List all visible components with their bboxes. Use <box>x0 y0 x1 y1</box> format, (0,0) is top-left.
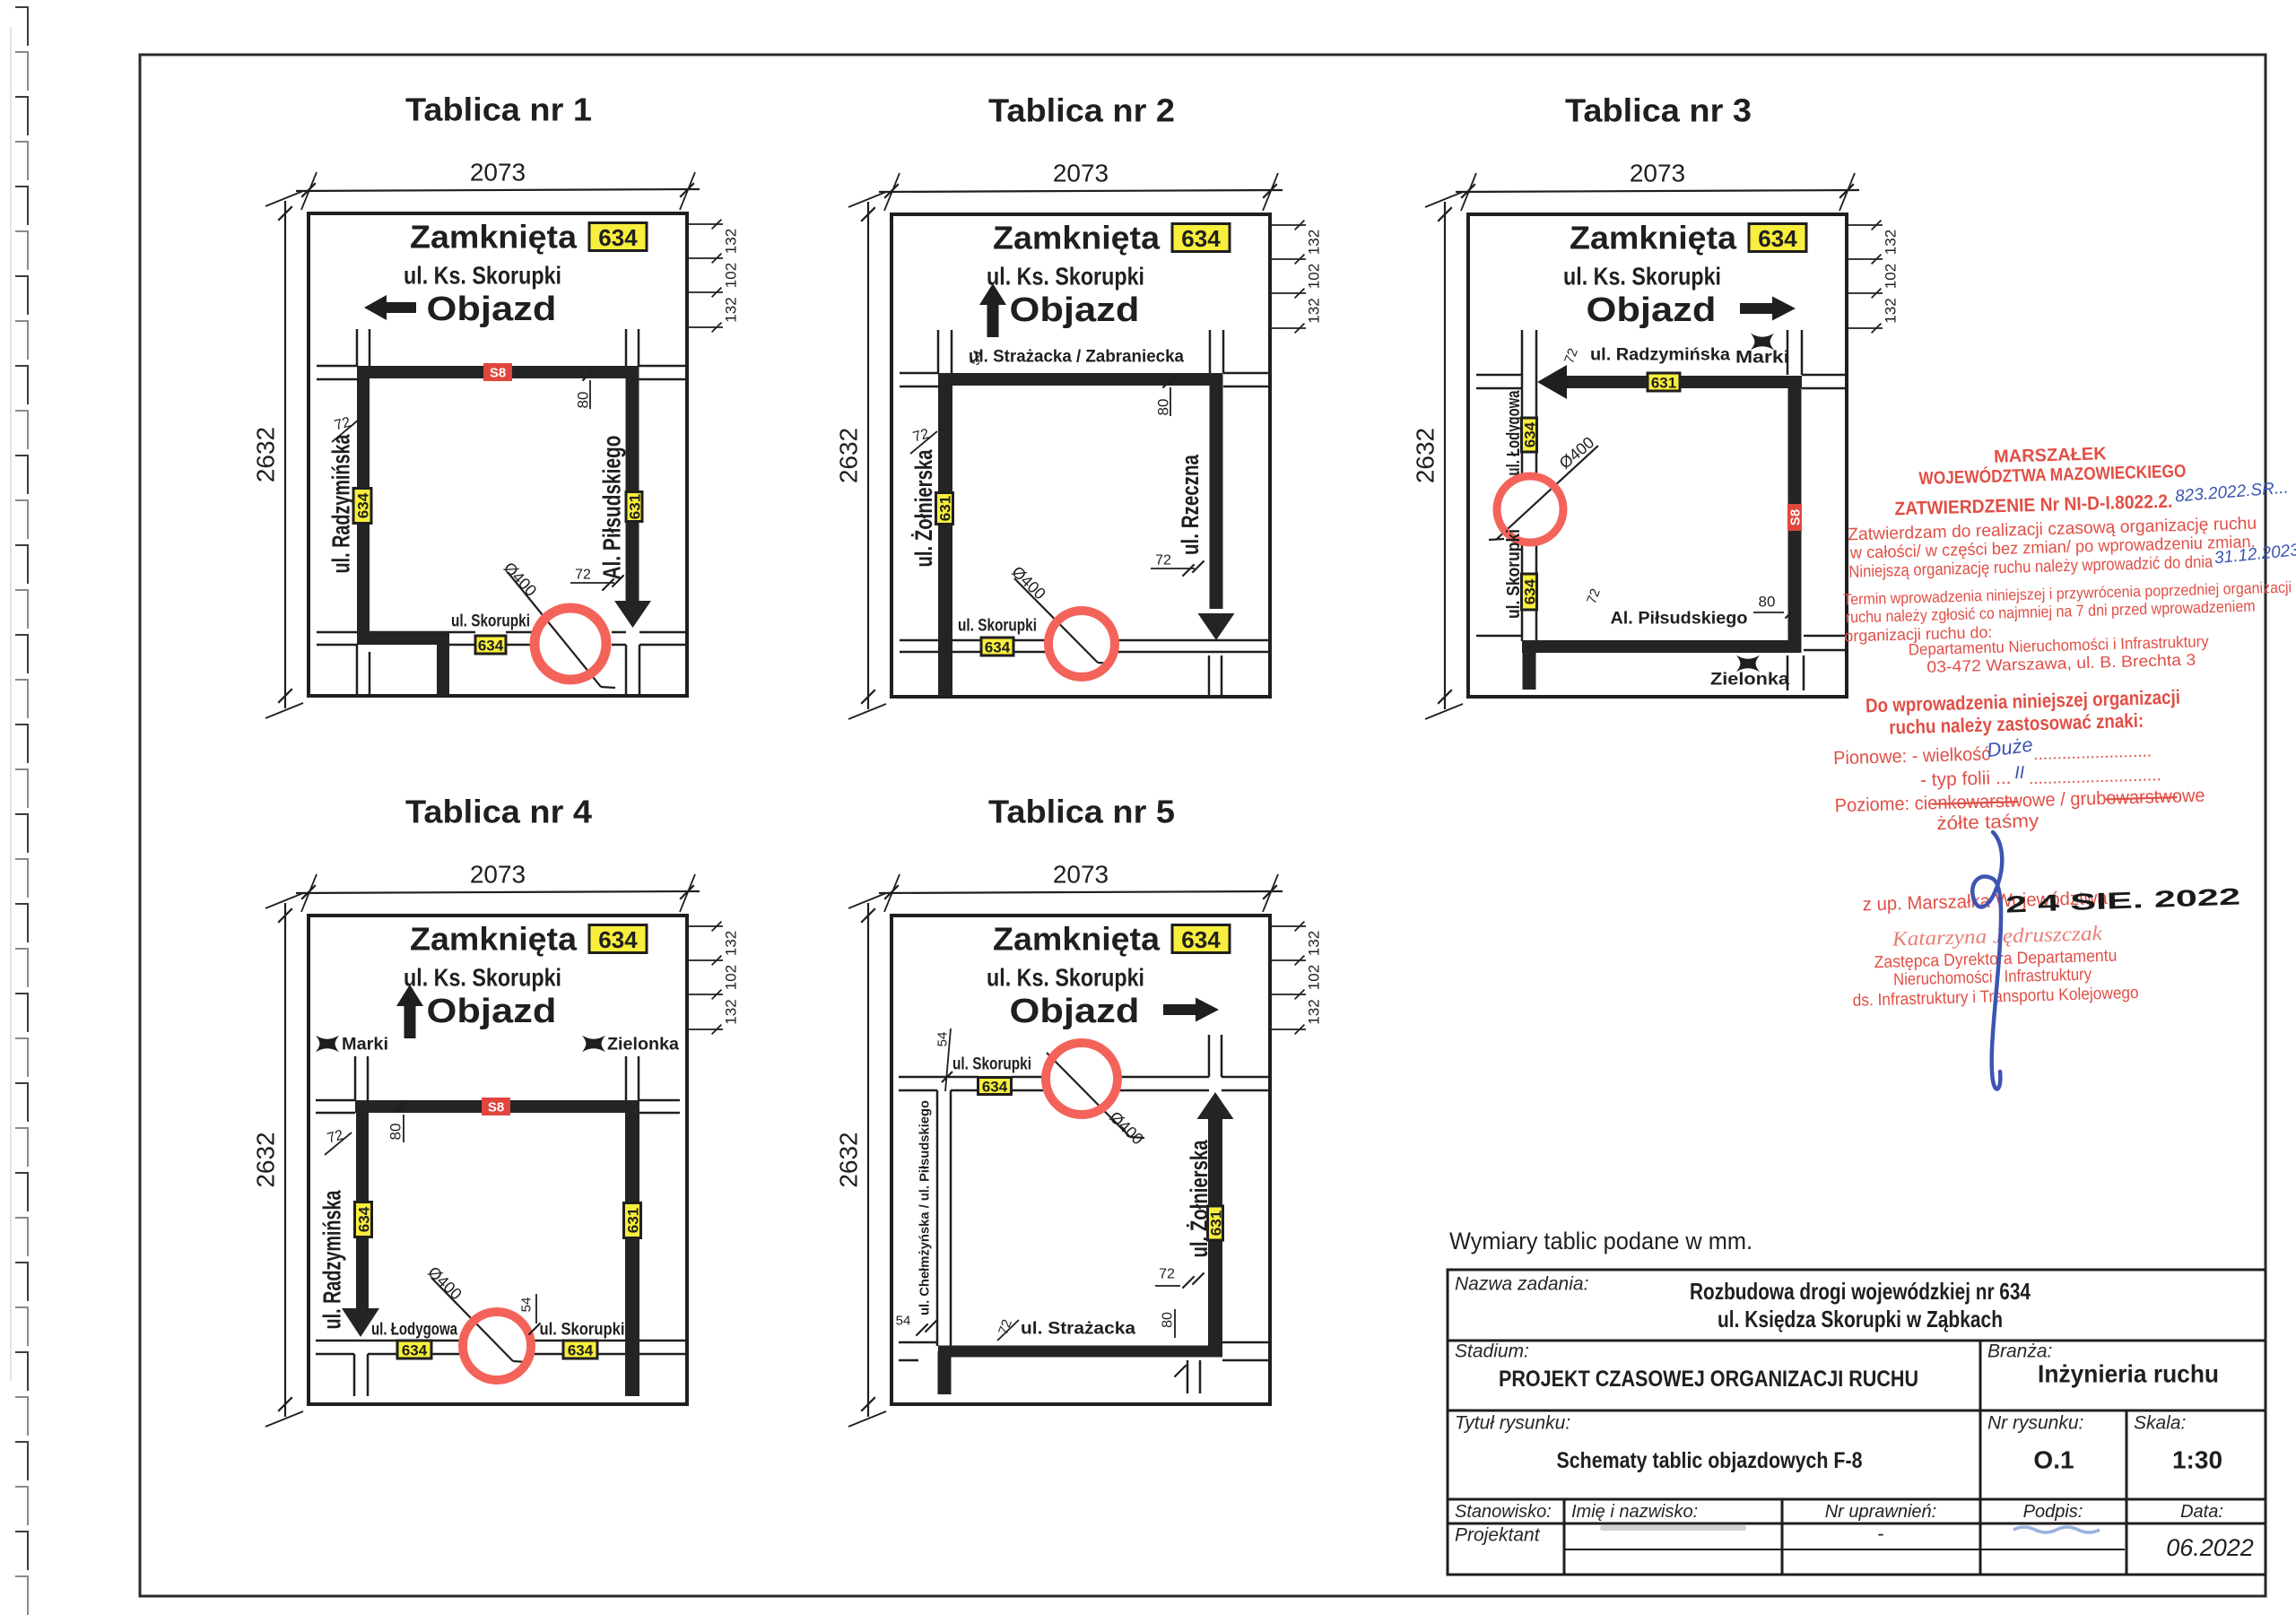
svg-text:1:30: 1:30 <box>2172 1446 2222 1474</box>
svg-text:ul. Ks. Skorupki: ul. Ks. Skorupki <box>1563 263 1721 291</box>
svg-text:Skala:: Skala: <box>2134 1413 2186 1434</box>
svg-text:Zielonka: Zielonka <box>607 1036 679 1055</box>
svg-text:ul. Skorupki: ul. Skorupki <box>1504 529 1524 619</box>
svg-text:132: 132 <box>723 229 740 254</box>
svg-text:Nr uprawnień:: Nr uprawnień: <box>1825 1502 1937 1522</box>
svg-text:634: 634 <box>355 492 372 518</box>
svg-text:80: 80 <box>1155 399 1172 416</box>
svg-text:06.2022: 06.2022 <box>2166 1534 2254 1561</box>
svg-text:634: 634 <box>985 639 1011 656</box>
svg-text:132: 132 <box>723 297 740 322</box>
svg-text:2073: 2073 <box>1630 160 1685 187</box>
svg-text:631: 631 <box>1651 375 1676 392</box>
svg-text:132: 132 <box>1306 931 1323 956</box>
svg-text:ul. Księdza Skorupki w Ząbkach: ul. Księdza Skorupki w Ząbkach <box>1718 1306 2003 1332</box>
svg-text:634: 634 <box>1522 578 1539 604</box>
svg-text:102: 102 <box>1306 264 1323 289</box>
svg-text:Podpis:: Podpis: <box>2023 1502 2083 1522</box>
svg-text:ul. Strażacka: ul. Strażacka <box>1021 1320 1135 1339</box>
svg-text:634: 634 <box>598 224 638 251</box>
svg-text:ul. Skorupki: ul. Skorupki <box>958 617 1037 636</box>
svg-text:-: - <box>1877 1523 1883 1545</box>
svg-text:631: 631 <box>937 496 954 521</box>
svg-text:2073: 2073 <box>470 861 526 889</box>
svg-text:ul. Łodygowa: ul. Łodygowa <box>1504 390 1524 476</box>
svg-text:Zamknięta: Zamknięta <box>993 921 1161 958</box>
svg-text:132: 132 <box>723 931 740 956</box>
svg-text:Objazd: Objazd <box>1587 291 1717 329</box>
svg-text:2632: 2632 <box>835 428 863 483</box>
svg-text:Stadium:: Stadium: <box>1455 1341 1529 1362</box>
svg-text:.........................: ......................... <box>2033 742 2152 764</box>
svg-text:Pionowe: - wielkość: Pionowe: - wielkość <box>1833 743 1991 768</box>
svg-text:2632: 2632 <box>252 1132 280 1187</box>
svg-text:ul. Łodygowa: ul. Łodygowa <box>371 1321 457 1340</box>
svg-text:Al. Piłsudskiego: Al. Piłsudskiego <box>1611 610 1748 629</box>
svg-text:Imię i nazwisko:: Imię i nazwisko: <box>1571 1502 1698 1522</box>
svg-text:80: 80 <box>1759 594 1776 611</box>
svg-text:631: 631 <box>627 494 644 519</box>
svg-text:Objazd: Objazd <box>1010 993 1140 1030</box>
svg-text:2632: 2632 <box>1412 428 1439 483</box>
svg-text:ul. Żołnierska: ul. Żołnierska <box>910 449 937 568</box>
svg-text:634: 634 <box>1181 225 1221 252</box>
svg-text:ul. Radzymińska: ul. Radzymińska <box>1590 346 1730 365</box>
svg-text:2073: 2073 <box>1053 861 1109 889</box>
svg-text:żółte taśmy: żółte taśmy <box>1936 811 2039 834</box>
svg-text:Zielonka: Zielonka <box>1710 671 1789 690</box>
svg-text:72: 72 <box>1155 553 1171 568</box>
svg-text:S8: S8 <box>490 366 506 381</box>
svg-text:80: 80 <box>387 1124 404 1141</box>
svg-text:S8: S8 <box>1788 509 1804 525</box>
svg-text:PROJEKT CZASOWEJ ORGANIZACJI R: PROJEKT CZASOWEJ ORGANIZACJI RUCHU <box>1499 1367 1918 1392</box>
svg-text:80: 80 <box>1161 1312 1176 1328</box>
svg-text:102: 102 <box>723 263 740 288</box>
svg-text:ul. Strażacka / Zabraniecka: ul. Strażacka / Zabraniecka <box>969 348 1184 367</box>
svg-text:O.1: O.1 <box>2033 1446 2074 1474</box>
svg-text:132: 132 <box>1306 999 1323 1024</box>
svg-text:Al. Piłsudskiego: Al. Piłsudskiego <box>598 436 626 580</box>
svg-text:Zamknięta: Zamknięta <box>410 921 578 958</box>
svg-text:Tablica nr 1: Tablica nr 1 <box>405 91 592 128</box>
svg-text:Nazwa zadania:: Nazwa zadania: <box>1455 1274 1588 1295</box>
svg-text:Stanowisko:: Stanowisko: <box>1455 1502 1552 1522</box>
svg-text:ul. Ks. Skorupki: ul. Ks. Skorupki <box>987 964 1144 992</box>
svg-text:634: 634 <box>1758 225 1797 252</box>
svg-text:54: 54 <box>896 1314 911 1329</box>
svg-text:102: 102 <box>1883 264 1900 289</box>
svg-text:Zamknięta: Zamknięta <box>1570 220 1737 256</box>
svg-text:132: 132 <box>1306 298 1323 323</box>
svg-text:ul. Ks. Skorupki: ul. Ks. Skorupki <box>404 262 561 290</box>
svg-text:Tablica nr 2: Tablica nr 2 <box>988 92 1175 129</box>
svg-text:102: 102 <box>723 965 740 990</box>
svg-text:132: 132 <box>1883 230 1900 255</box>
svg-text:634: 634 <box>1181 926 1221 953</box>
svg-text:Nr rysunku:: Nr rysunku: <box>1987 1413 2083 1434</box>
svg-text:ul. Ks. Skorupki: ul. Ks. Skorupki <box>987 263 1144 291</box>
svg-text:ul. Skorupki: ul. Skorupki <box>952 1055 1031 1074</box>
svg-text:ul. Radzymińska: ul. Radzymińska <box>318 1190 346 1329</box>
svg-text:Objazd: Objazd <box>1010 291 1140 329</box>
svg-text:72: 72 <box>575 568 591 583</box>
svg-text:Wymiary tablic podane w mm.: Wymiary tablic podane w mm. <box>1449 1228 1752 1254</box>
svg-text:634: 634 <box>568 1342 594 1359</box>
svg-text:Schematy tablic objazdowych F-: Schematy tablic objazdowych F-8 <box>1557 1448 1863 1473</box>
svg-text:Marki: Marki <box>1735 349 1789 368</box>
svg-text:634: 634 <box>1522 421 1539 447</box>
svg-text:80: 80 <box>575 392 592 409</box>
svg-text:ul. Skorupki: ul. Skorupki <box>540 1321 625 1340</box>
svg-text:132: 132 <box>723 999 740 1024</box>
svg-text:634: 634 <box>478 638 504 655</box>
svg-text:634: 634 <box>982 1079 1008 1096</box>
svg-text:Tablica nr 3: Tablica nr 3 <box>1565 92 1752 129</box>
svg-text:Projektant: Projektant <box>1455 1525 1541 1546</box>
svg-text:S8: S8 <box>488 1100 504 1115</box>
svg-text:Tablica nr 4: Tablica nr 4 <box>405 794 592 830</box>
svg-text:ul. Radzymińska: ul. Radzymińska <box>327 434 355 573</box>
svg-text:54: 54 <box>519 1298 535 1313</box>
svg-text:634: 634 <box>356 1206 373 1232</box>
svg-text:II: II <box>2014 763 2025 783</box>
svg-text:102: 102 <box>1306 965 1323 990</box>
svg-text:634: 634 <box>402 1342 428 1359</box>
svg-text:Marki: Marki <box>342 1036 388 1055</box>
svg-text:ul. Skorupki: ul. Skorupki <box>451 612 530 631</box>
svg-text:Objazd: Objazd <box>427 291 557 328</box>
svg-text:634: 634 <box>598 926 638 953</box>
svg-text:Inżynieria ruchu: Inżynieria ruchu <box>2038 1360 2219 1388</box>
svg-text:Zamknięta: Zamknięta <box>410 219 578 256</box>
svg-text:ul. Żołnierska: ul. Żołnierska <box>1186 1140 1213 1258</box>
svg-text:Branża:: Branża: <box>1987 1341 2052 1362</box>
svg-text:Objazd: Objazd <box>427 993 557 1030</box>
svg-text:ul. Chełmżyńska / ul. Piłsudsk: ul. Chełmżyńska / ul. Piłsudskiego <box>918 1100 933 1315</box>
svg-text:............................: ............................ <box>2029 766 2161 788</box>
svg-text:ul. Rzeczna: ul. Rzeczna <box>1177 454 1204 555</box>
svg-text:- typ folii ...: - typ folii ... <box>1920 768 2012 791</box>
svg-text:Tablica nr 5: Tablica nr 5 <box>988 794 1175 830</box>
svg-text:132: 132 <box>1883 298 1900 323</box>
svg-text:Tytuł rysunku:: Tytuł rysunku: <box>1455 1413 1570 1434</box>
svg-text:2632: 2632 <box>252 427 280 482</box>
svg-text:2632: 2632 <box>835 1132 863 1187</box>
svg-text:2073: 2073 <box>470 159 526 187</box>
svg-text:Zamknięta: Zamknięta <box>993 220 1161 256</box>
svg-text:72: 72 <box>1159 1267 1175 1282</box>
svg-text:Rozbudowa drogi wojewódzkiej n: Rozbudowa drogi wojewódzkiej nr 634 <box>1690 1278 2031 1305</box>
svg-text:54: 54 <box>935 1032 951 1047</box>
svg-text:Data:: Data: <box>2180 1502 2223 1522</box>
svg-text:132: 132 <box>1306 230 1323 255</box>
svg-text:631: 631 <box>625 1208 642 1233</box>
svg-text:2073: 2073 <box>1053 160 1109 187</box>
svg-text:ul. Ks. Skorupki: ul. Ks. Skorupki <box>404 964 561 992</box>
